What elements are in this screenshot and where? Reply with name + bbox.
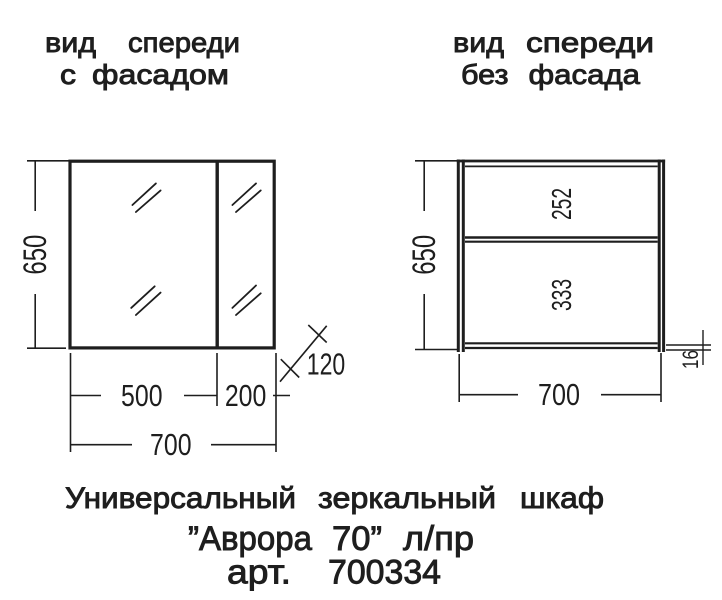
svg-text:спереди: спереди bbox=[128, 27, 240, 58]
svg-text:вид: вид bbox=[45, 27, 96, 58]
svg-text:700334: 700334 bbox=[328, 554, 441, 592]
svg-text:вид: вид bbox=[453, 27, 504, 58]
svg-text:зеркальный: зеркальный bbox=[318, 482, 496, 515]
svg-text:70”: 70” bbox=[332, 520, 382, 558]
svg-text:700: 700 bbox=[150, 427, 192, 462]
svg-text:16: 16 bbox=[678, 350, 703, 369]
svg-text:120: 120 bbox=[307, 347, 346, 382]
svg-text:арт.: арт. bbox=[227, 554, 291, 592]
svg-text:333: 333 bbox=[546, 279, 577, 311]
svg-text:спереди: спереди bbox=[526, 27, 654, 58]
svg-text:200: 200 bbox=[225, 378, 267, 413]
svg-text:без: без bbox=[461, 59, 509, 90]
svg-text:с: с bbox=[60, 59, 76, 90]
svg-text:фасадом: фасадом bbox=[92, 59, 229, 90]
svg-text:650: 650 bbox=[406, 235, 442, 275]
svg-text:фасада: фасада bbox=[529, 59, 641, 90]
svg-text:252: 252 bbox=[546, 188, 577, 220]
svg-text:”Аврора: ”Аврора bbox=[188, 520, 312, 558]
svg-text:Универсальный: Универсальный bbox=[65, 482, 296, 515]
svg-text:л/пр: л/пр bbox=[403, 520, 474, 558]
svg-text:шкаф: шкаф bbox=[520, 482, 604, 515]
svg-text:700: 700 bbox=[538, 377, 580, 412]
svg-text:650: 650 bbox=[17, 235, 53, 275]
svg-text:500: 500 bbox=[121, 378, 163, 413]
